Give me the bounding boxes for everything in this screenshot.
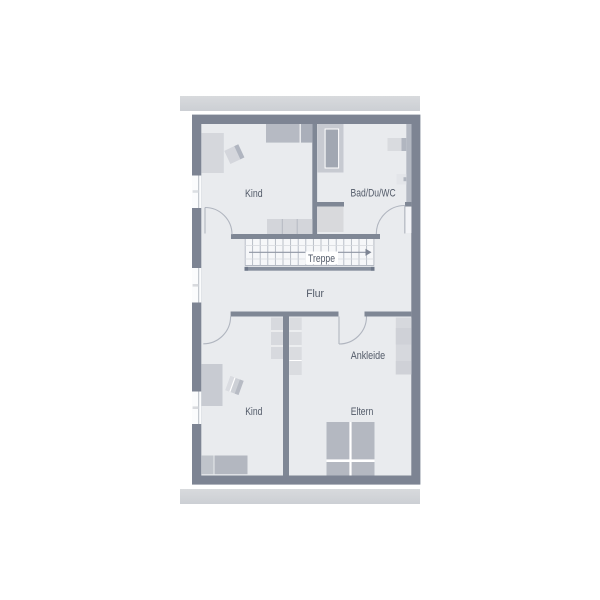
svg-text:Flur: Flur <box>306 288 324 300</box>
svg-text:Kind: Kind <box>245 188 263 200</box>
svg-text:Kind: Kind <box>245 406 262 418</box>
svg-text:Treppe: Treppe <box>308 253 335 265</box>
svg-text:Bad/Du/WC: Bad/Du/WC <box>351 188 396 200</box>
svg-text:Ankleide: Ankleide <box>351 350 386 362</box>
svg-text:Eltern: Eltern <box>351 406 374 418</box>
